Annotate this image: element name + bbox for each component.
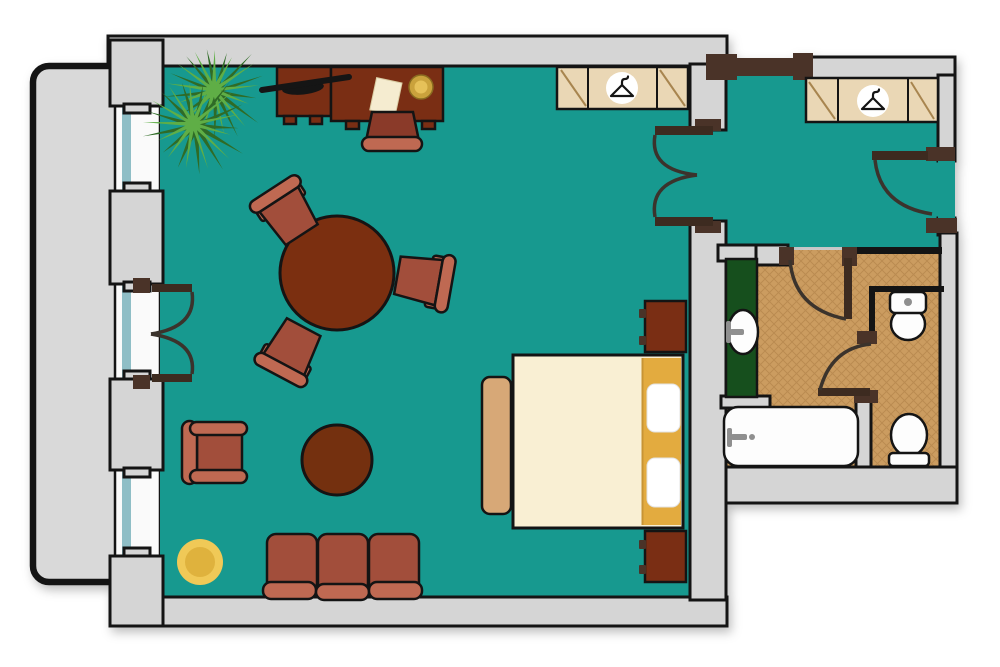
door-jamb	[133, 375, 150, 389]
desk-foot	[346, 121, 359, 129]
pillow	[647, 384, 680, 432]
toilet-flush-button	[904, 298, 912, 306]
hanger-badge	[606, 72, 638, 104]
door-leaf	[818, 388, 870, 396]
desk-chair-back	[362, 137, 422, 151]
nightstand-knob	[639, 565, 646, 574]
sofa-front-bar	[263, 582, 316, 599]
tub-faucet-spout	[731, 434, 747, 440]
pier-4	[110, 556, 163, 626]
rug-inner	[185, 547, 215, 577]
pier-2	[110, 191, 163, 284]
door-leaf	[655, 126, 713, 135]
sink-faucet-spout	[730, 329, 744, 335]
bedroom-right-wall-lower	[690, 221, 726, 600]
nightstand-knob	[639, 336, 646, 345]
pier-3-neck-bottom	[124, 468, 150, 477]
beam-post-left	[706, 54, 737, 80]
wardrobe-bedroom	[557, 67, 688, 109]
bathroom-right-wall	[940, 233, 957, 503]
round-ottoman	[302, 425, 372, 495]
beam-post-right	[793, 53, 813, 80]
entry-threshold	[938, 161, 955, 218]
floor-plan-canvas	[0, 0, 1000, 667]
nightstand-knob	[639, 540, 646, 549]
tub-drain	[749, 434, 755, 440]
pier-1-neck	[124, 104, 150, 113]
hanger-badge	[857, 85, 889, 117]
toilet-tank	[889, 453, 929, 466]
door-leaf	[844, 258, 852, 319]
pier-3	[110, 379, 163, 470]
desk-foot	[422, 121, 435, 129]
round-rug	[177, 539, 223, 585]
nightstand-knob	[639, 309, 646, 318]
door-jamb	[133, 278, 150, 293]
sofa-front-bar	[316, 584, 369, 600]
nightstand	[645, 531, 686, 582]
nightstand	[645, 301, 686, 352]
door-jamb	[857, 331, 877, 344]
top-beam	[706, 53, 813, 80]
floor-plan-page	[0, 0, 1000, 667]
wardrobe-hallway	[806, 78, 938, 122]
door-jamb	[926, 218, 957, 233]
window-glass-line	[122, 100, 131, 562]
door-leaf	[655, 217, 713, 226]
bottom-wall	[110, 597, 727, 626]
armchair	[182, 421, 247, 484]
pier-1	[110, 40, 163, 106]
bathroom-bottom-wall	[690, 467, 957, 503]
toilet-upper	[890, 292, 926, 340]
door-leaf	[872, 151, 928, 160]
armchair-arm	[190, 422, 247, 435]
gold-plate-center	[415, 81, 428, 94]
desk-chair	[362, 112, 422, 151]
door-leaf	[152, 284, 192, 292]
pillow	[647, 458, 680, 507]
armchair-seat	[197, 433, 242, 472]
window-band	[115, 100, 160, 562]
toilet-bowl	[891, 414, 927, 456]
bed-bench	[482, 377, 511, 514]
armchair-arm	[190, 470, 247, 483]
dresser-foot	[310, 116, 322, 124]
door-leaf	[152, 374, 192, 382]
left-window-wall	[115, 100, 160, 562]
hallway-top-wall	[810, 57, 955, 79]
door-jamb	[926, 147, 955, 161]
sofa-front-bar	[369, 582, 422, 599]
toilet-lower	[889, 414, 929, 466]
dresser-foot	[284, 116, 296, 124]
top-wall	[108, 36, 727, 66]
sofa	[263, 534, 422, 600]
